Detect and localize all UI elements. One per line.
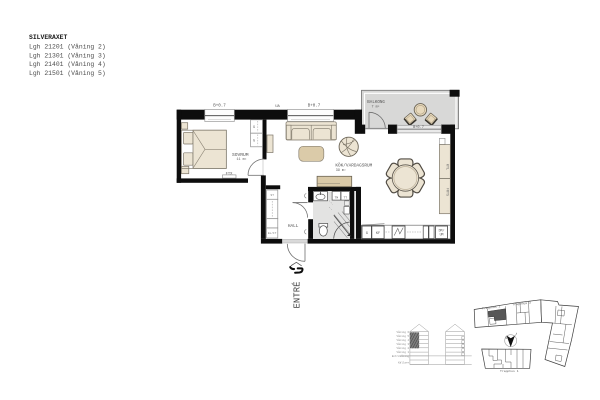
svg-text:KYL: KYL xyxy=(445,164,449,170)
svg-text:B+0.7: B+0.7 xyxy=(308,104,321,108)
svg-text:B+0.7: B+0.7 xyxy=(413,126,424,130)
svg-text:TM: TM xyxy=(335,196,339,199)
svg-text:N: N xyxy=(505,337,507,341)
svg-text:Våning 6: Våning 6 xyxy=(397,330,410,334)
svg-text:Trapphus 1: Trapphus 1 xyxy=(500,369,519,373)
svg-text:G: G xyxy=(253,126,255,130)
svg-text:Våning 2: Våning 2 xyxy=(397,346,410,350)
svg-text:Entrévåning: Entrévåning xyxy=(392,354,410,358)
svg-text:Lgh 21201 (Våning 2): Lgh 21201 (Våning 2) xyxy=(29,43,106,51)
svg-text:Lgh 21401 (Våning 4): Lgh 21401 (Våning 4) xyxy=(29,60,106,68)
svg-text:39 m²: 39 m² xyxy=(336,169,346,173)
svg-text:Våning 4: Våning 4 xyxy=(397,338,410,342)
svg-text:UA: UA xyxy=(275,105,280,109)
svg-text:ST: ST xyxy=(271,194,275,197)
svg-text:11 m²: 11 m² xyxy=(237,158,247,162)
svg-text:ENTRÉ: ENTRÉ xyxy=(291,281,302,308)
svg-text:FRYS: FRYS xyxy=(445,188,449,196)
svg-text:TT: TT xyxy=(343,196,347,199)
svg-text:Lgh 21301 (Våning 3): Lgh 21301 (Våning 3) xyxy=(29,51,106,59)
svg-text:KF: KF xyxy=(376,232,380,236)
svg-text:SILVERAXET: SILVERAXET xyxy=(29,34,68,41)
svg-text:Lgh 21501 (Våning 5): Lgh 21501 (Våning 5) xyxy=(29,69,106,77)
svg-text:UM: UM xyxy=(440,233,444,237)
svg-text:Våning 3: Våning 3 xyxy=(397,342,410,346)
svg-text:Källare: Källare xyxy=(398,361,409,365)
svg-text:G: G xyxy=(366,232,368,236)
svg-text:Våning 5: Våning 5 xyxy=(397,334,410,338)
svg-text:SOVRUM: SOVRUM xyxy=(232,152,249,158)
svg-text:7 m²: 7 m² xyxy=(372,106,380,110)
svg-text:B+0.7: B+0.7 xyxy=(213,104,226,108)
svg-text:EL/IT: EL/IT xyxy=(268,231,277,235)
svg-text:Våning 1: Våning 1 xyxy=(397,350,410,354)
svg-text:BALKONG: BALKONG xyxy=(367,101,385,105)
svg-text:HALL: HALL xyxy=(288,224,299,229)
svg-text:G: G xyxy=(253,140,255,144)
